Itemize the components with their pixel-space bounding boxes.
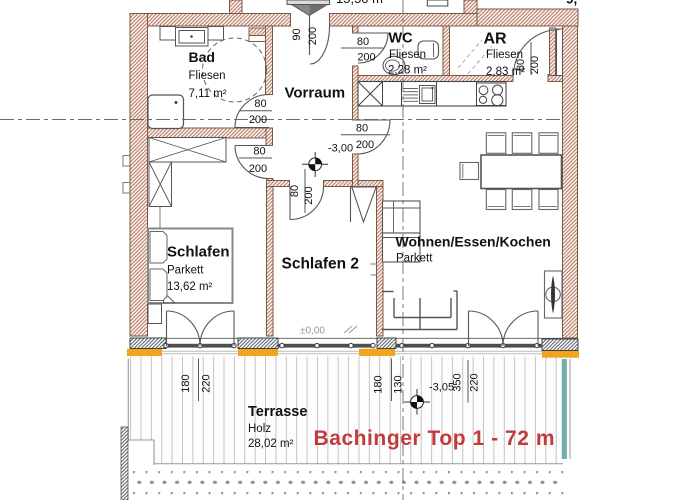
svg-text:200: 200 (529, 56, 541, 74)
svg-text:220: 220 (200, 374, 212, 392)
svg-text:200: 200 (249, 114, 267, 126)
svg-text:80: 80 (289, 185, 301, 197)
svg-text:200: 200 (357, 52, 375, 64)
svg-text:Fliesen: Fliesen (486, 49, 523, 61)
svg-text:9,: 9, (566, 0, 577, 7)
svg-text:Bad: Bad (189, 49, 215, 65)
svg-text:2,83 m²: 2,83 m² (486, 66, 525, 78)
svg-text:2,28 m²: 2,28 m² (388, 65, 427, 77)
svg-text:±0,00: ±0,00 (300, 326, 325, 337)
svg-text:80: 80 (357, 36, 369, 48)
svg-text:200: 200 (356, 139, 374, 151)
svg-text:200: 200 (249, 163, 267, 175)
svg-text:90: 90 (291, 28, 303, 40)
svg-text:WC: WC (389, 30, 414, 46)
svg-text:Parkett: Parkett (167, 265, 204, 277)
svg-text:200: 200 (303, 186, 315, 204)
svg-text:180: 180 (180, 374, 192, 392)
svg-text:180: 180 (373, 375, 385, 393)
svg-text:220: 220 (468, 373, 480, 391)
svg-text:80: 80 (254, 98, 266, 110)
svg-text:80: 80 (356, 123, 368, 135)
svg-text:7,11 m²: 7,11 m² (189, 88, 227, 100)
svg-text:13,62 m²: 13,62 m² (167, 281, 213, 293)
svg-text:Schlafen 2: Schlafen 2 (282, 256, 360, 273)
svg-text:Bachinger Top 1 - 72 m: Bachinger Top 1 - 72 m (314, 427, 556, 450)
svg-text:Vorraum: Vorraum (285, 85, 346, 102)
svg-text:-3,00: -3,00 (328, 143, 353, 155)
svg-text:15,50 m: 15,50 m (336, 0, 383, 6)
svg-text:Terrasse: Terrasse (248, 404, 307, 420)
svg-text:Holz: Holz (248, 423, 271, 435)
svg-text:130: 130 (393, 375, 405, 393)
svg-text:80: 80 (253, 146, 265, 158)
svg-text:Fliesen: Fliesen (189, 70, 226, 82)
svg-text:Schlafen: Schlafen (167, 244, 230, 261)
svg-text:AR: AR (484, 31, 508, 48)
svg-text:Wohnen/Essen/Kochen: Wohnen/Essen/Kochen (396, 234, 551, 250)
svg-text:-3,05: -3,05 (429, 382, 454, 394)
svg-text:28,02 m²: 28,02 m² (248, 438, 294, 450)
svg-text:200: 200 (307, 27, 319, 45)
svg-text:Fliesen: Fliesen (389, 49, 426, 61)
svg-text:Parkett: Parkett (396, 253, 433, 265)
